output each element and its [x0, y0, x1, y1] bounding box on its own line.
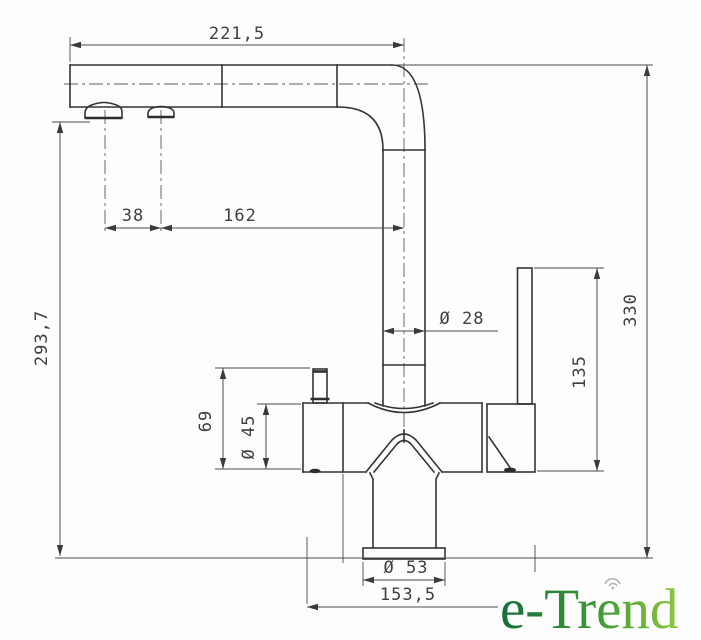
- lever-rod: [518, 268, 533, 404]
- dim-spout-height-label: 293,7: [32, 310, 52, 366]
- elbow-outer-curve: [392, 65, 425, 150]
- dim-overall-height: 330: [392, 65, 653, 558]
- dim-lever-height: 135: [534, 268, 604, 471]
- dim-pipe-diameter-label: Ø 28: [440, 309, 485, 329]
- dim-spout-reach: 221,5: [70, 24, 404, 62]
- body-left-detail: [310, 469, 321, 473]
- handle-block-detail: [504, 468, 516, 473]
- dim-base-diameter: Ø 53: [363, 558, 445, 586]
- dim-aerator-spacing-label: 38: [122, 206, 144, 226]
- dim-body-height-label: 69: [196, 410, 216, 432]
- dim-spout-reach-label: 221,5: [209, 24, 265, 44]
- outlet-column-left: [370, 473, 373, 548]
- dim-body-diameter: Ø 45: [239, 404, 301, 469]
- dim-spout-height: 293,7: [32, 122, 90, 556]
- dim-aerator-to-axis-label: 162: [223, 206, 257, 226]
- dim-base-diameter-label: Ø 53: [384, 558, 429, 578]
- technical-drawing-canvas: 221,5 38 162 293,7 Ø 28 330: [0, 0, 701, 640]
- dim-aerator-spacing: 38: [105, 206, 161, 231]
- handle-block: [487, 404, 535, 472]
- dim-aerator-to-axis: 162: [161, 206, 404, 231]
- centerlines: [64, 38, 432, 432]
- elbow-inner-curve: [338, 107, 383, 150]
- outlet-arch-inner: [374, 441, 434, 473]
- handle-block-diagonal: [489, 437, 511, 469]
- dim-overall-height-label: 330: [621, 293, 641, 327]
- dim-overall-depth-label: 153,5: [380, 585, 436, 605]
- dim-lever-height-label: 135: [570, 355, 590, 389]
- dim-body-diameter-label: Ø 45: [239, 415, 259, 460]
- logo-text: e-Trend: [500, 578, 678, 640]
- dim-pipe-diameter: Ø 28: [383, 309, 498, 334]
- logo: e-Trend: [498, 572, 678, 640]
- aerator-large: [85, 103, 122, 119]
- outlet-column-right: [436, 473, 439, 548]
